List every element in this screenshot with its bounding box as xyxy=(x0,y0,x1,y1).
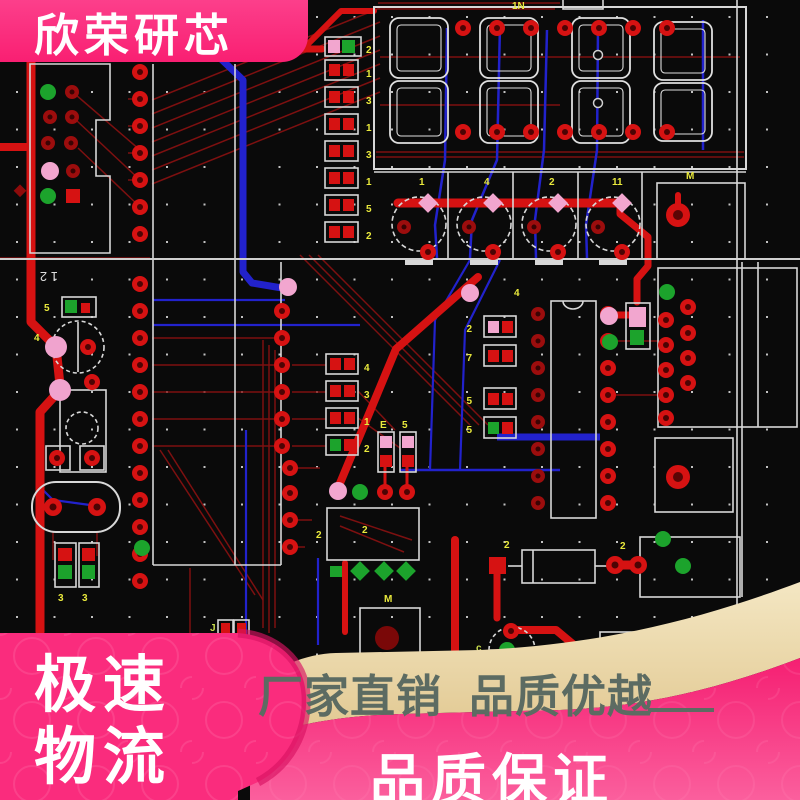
shipping-text: 极速 物流 xyxy=(34,650,172,794)
brand-name: 欣荣研芯 xyxy=(0,0,234,64)
svg-text:11: 11 xyxy=(612,177,623,188)
svg-text:2: 2 xyxy=(364,444,370,455)
svg-text:1: 1 xyxy=(419,177,425,188)
svg-text:1: 1 xyxy=(366,123,372,134)
svg-text:1: 1 xyxy=(366,177,372,188)
shipping-line2: 物流 xyxy=(34,722,172,794)
svg-text:5: 5 xyxy=(366,204,372,215)
svg-text:5: 5 xyxy=(466,425,472,436)
top-label: 1N xyxy=(512,1,525,12)
svg-text:3: 3 xyxy=(366,96,372,107)
svg-text:4: 4 xyxy=(484,177,490,188)
svg-text:E: E xyxy=(380,420,387,431)
shipping-line1: 极速 xyxy=(34,650,172,722)
svg-text:3: 3 xyxy=(364,390,370,401)
svg-text:4: 4 xyxy=(34,333,40,344)
svg-text:2: 2 xyxy=(466,324,472,335)
marketing-banner: 极速 物流 厂家直销 品质优越 品质保证 xyxy=(0,560,800,800)
svg-text:5: 5 xyxy=(466,396,472,407)
svg-text:2: 2 xyxy=(549,177,555,188)
brand-banner: 欣荣研芯 xyxy=(0,0,308,62)
svg-text:4: 4 xyxy=(514,288,520,299)
product-image: 1N 1 2 1 4 2 11 2 1 3 1 3 1 5 2 4 3 1 2 … xyxy=(0,0,800,800)
svg-text:7: 7 xyxy=(466,353,472,364)
svg-text:2: 2 xyxy=(366,45,372,56)
svg-text:5: 5 xyxy=(44,303,50,314)
slogan-text: 厂家直销 品质优越 xyxy=(258,660,653,725)
svg-text:3: 3 xyxy=(366,150,372,161)
svg-text:4: 4 xyxy=(364,363,370,374)
svg-text:5: 5 xyxy=(402,420,408,431)
slogan-underline xyxy=(648,708,714,712)
svg-text:2: 2 xyxy=(620,541,626,552)
guarantee-text: 品质保证 xyxy=(370,735,614,800)
svg-text:2: 2 xyxy=(366,231,372,242)
svg-text:1: 1 xyxy=(364,417,370,428)
svg-text:1: 1 xyxy=(366,69,372,80)
silkscreen-text-12: 1 2 xyxy=(40,269,58,284)
svg-text:2: 2 xyxy=(362,525,368,536)
svg-text:2: 2 xyxy=(504,540,510,551)
svg-text:M: M xyxy=(686,171,694,182)
svg-text:2: 2 xyxy=(316,530,322,541)
